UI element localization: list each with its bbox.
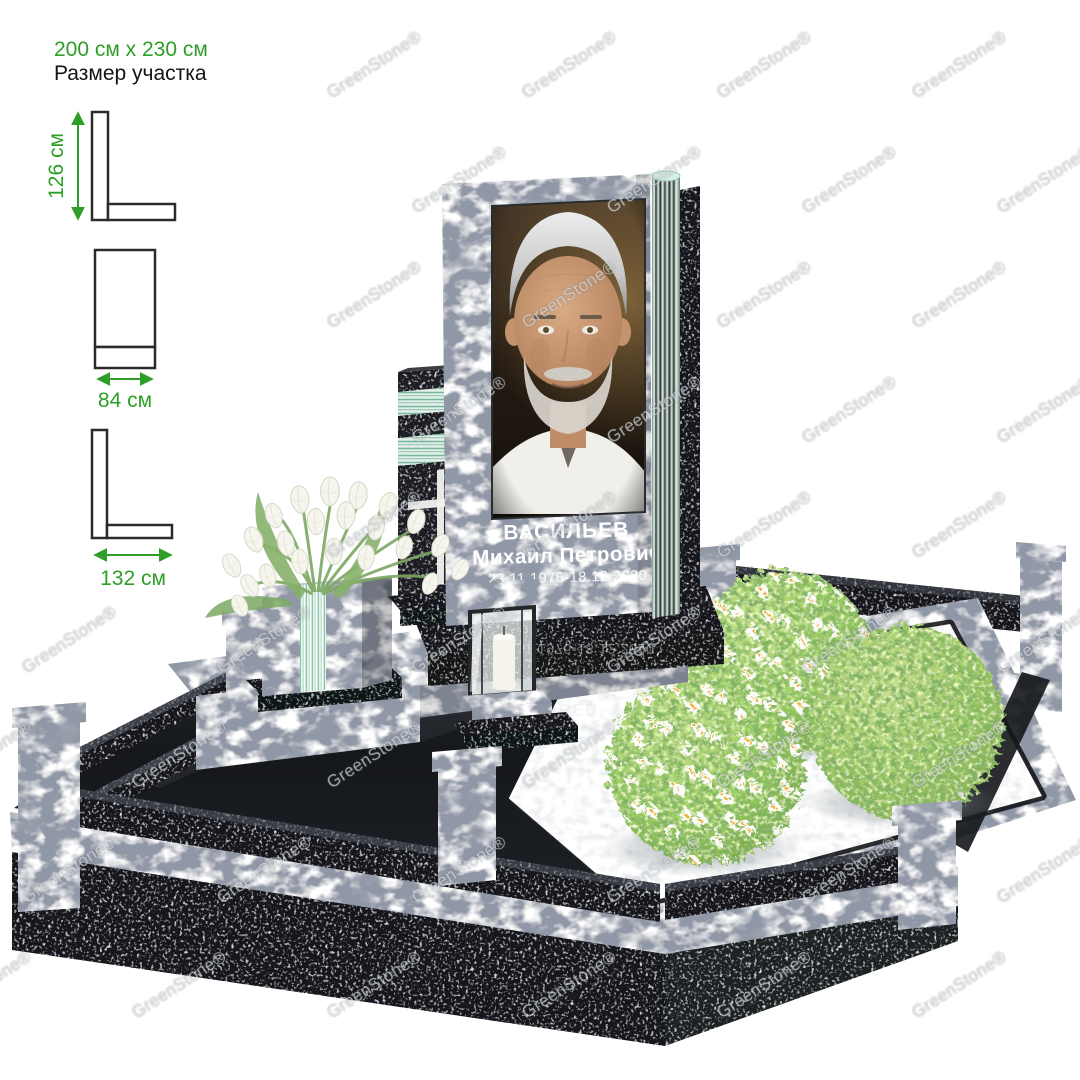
plot-size-value: 200 см x 230 см <box>54 38 208 62</box>
drawing-stele-front: 84 см <box>95 250 155 412</box>
drawing-base-side: 132 см <box>92 430 172 590</box>
center-post <box>438 760 496 886</box>
candle <box>493 636 515 690</box>
right-post <box>898 814 956 930</box>
glass-column <box>652 174 680 618</box>
drawing2-stele-rect <box>95 250 155 347</box>
drawing-stele-side: 126 см <box>45 112 175 220</box>
drawing2-base-band <box>95 347 155 368</box>
dimension-drawings: 126 см 84 см 132 см <box>30 95 230 605</box>
left-corner-post <box>18 716 80 912</box>
drawing1-horizontal-bar <box>108 204 175 220</box>
engraved-surname: ВАСИЛЬЕВ <box>503 518 630 544</box>
green-bush <box>805 621 999 815</box>
engraved-cross-vertical <box>437 469 444 585</box>
vase-glass-strip <box>300 583 326 692</box>
glass-column-black-strip <box>680 186 700 614</box>
drawing3-horizontal-bar <box>107 525 172 538</box>
plot-size-caption: Размер участка <box>54 62 208 86</box>
flowering-bush-front-blooms <box>606 666 798 858</box>
drawing3-vertical-bar <box>92 430 107 538</box>
drawing1-vertical-bar <box>92 112 108 220</box>
vase-side-shade <box>362 576 392 688</box>
glass-column-cap <box>652 171 680 181</box>
plot-size-annotation: 200 см x 230 см Размер участка <box>54 38 208 86</box>
height-dimension-label: 126 см <box>45 133 68 199</box>
depth-dimension-label: 132 см <box>100 567 166 590</box>
width-dimension-label: 84 см <box>98 389 152 412</box>
